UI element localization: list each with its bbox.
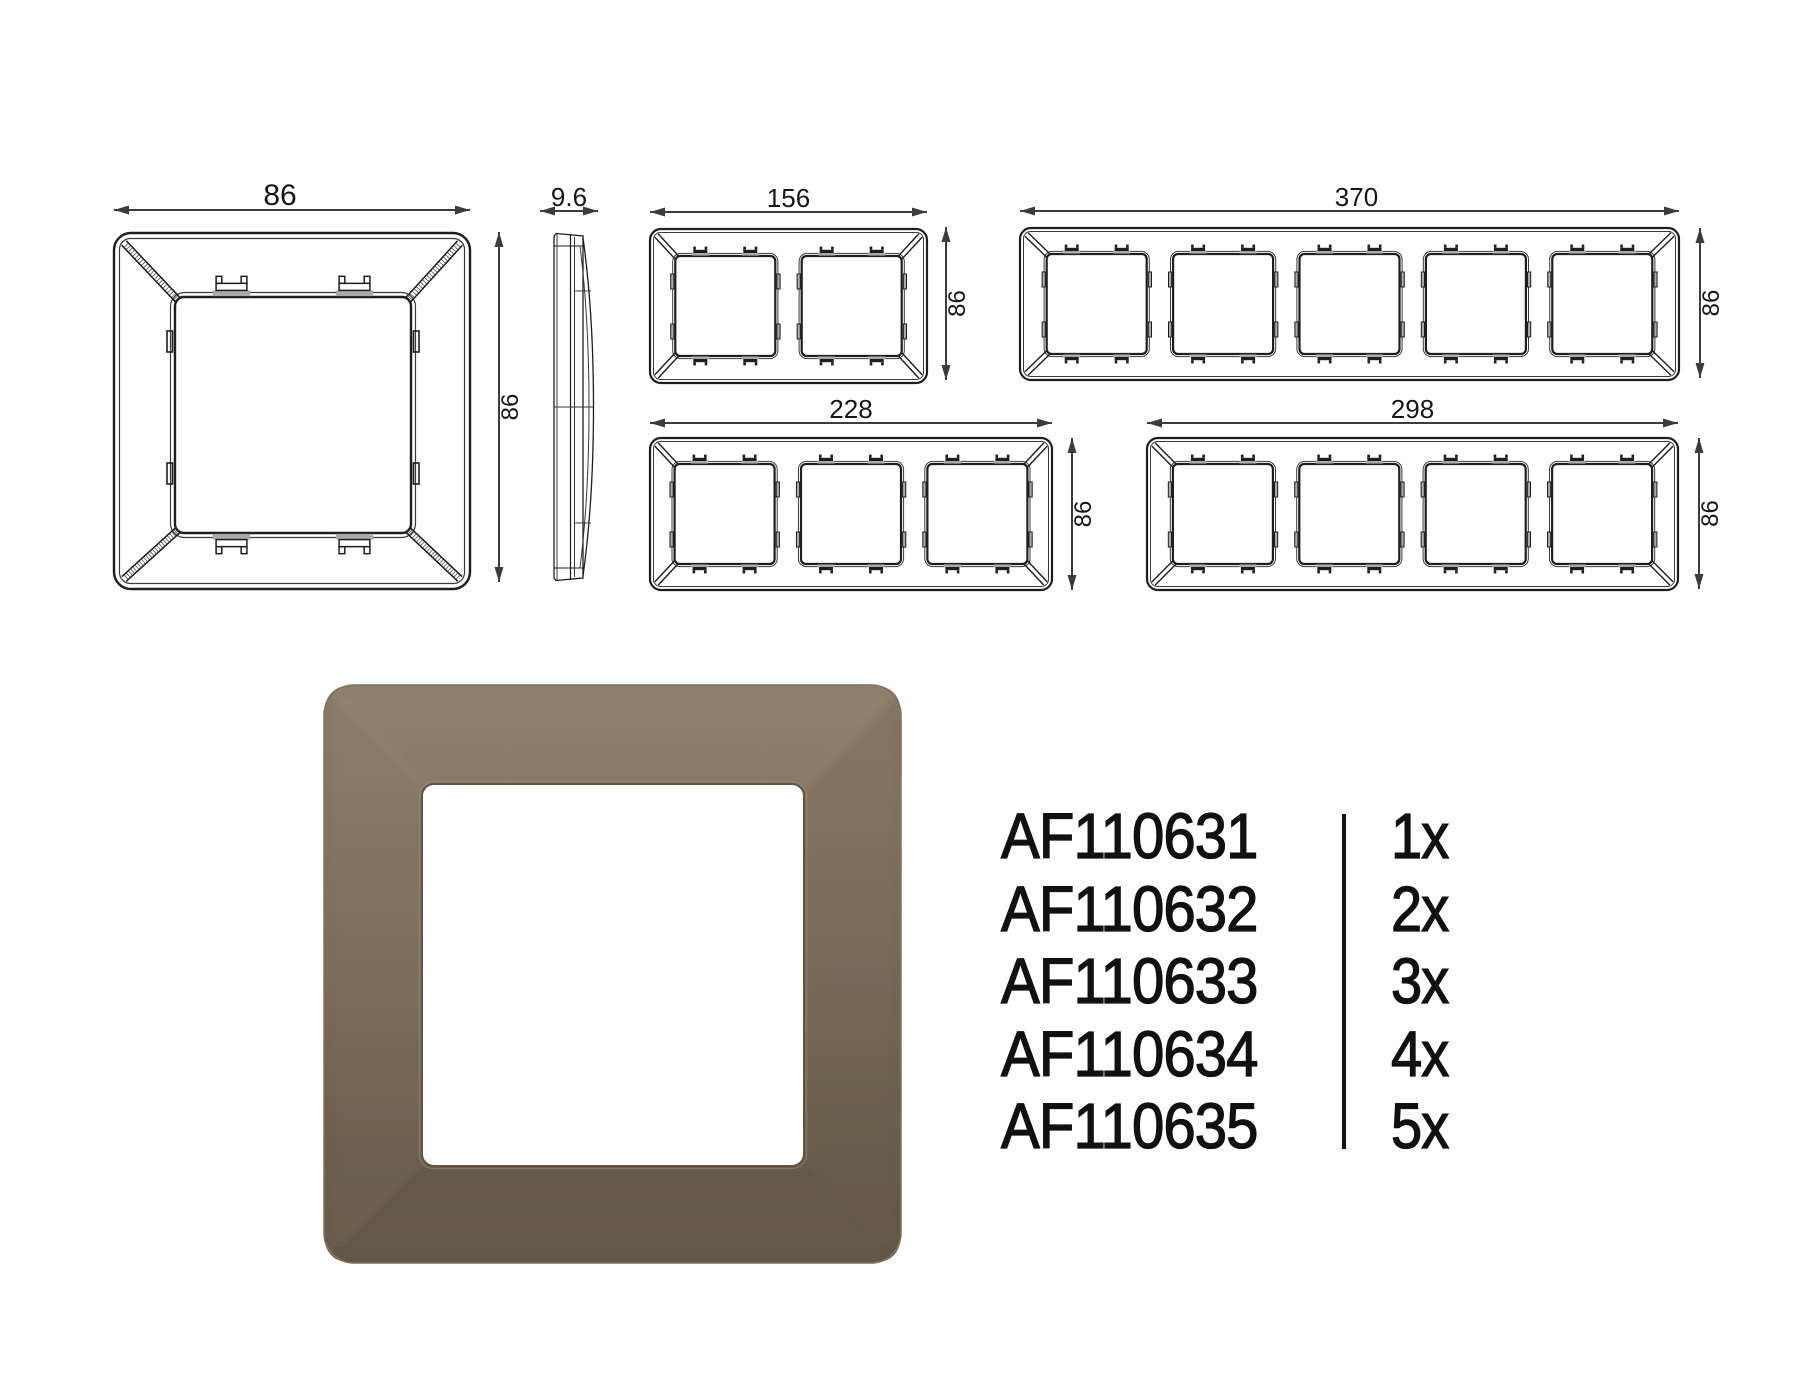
svg-text:86: 86 bbox=[263, 179, 296, 212]
svg-text:86: 86 bbox=[1697, 500, 1724, 527]
svg-text:86: 86 bbox=[1698, 290, 1725, 317]
svg-text:86: 86 bbox=[1070, 501, 1097, 528]
svg-text:9.6: 9.6 bbox=[551, 182, 587, 212]
svg-text:298: 298 bbox=[1391, 394, 1434, 424]
svg-text:86: 86 bbox=[497, 394, 524, 421]
svg-text:86: 86 bbox=[944, 290, 971, 317]
svg-text:228: 228 bbox=[829, 394, 872, 424]
svg-text:156: 156 bbox=[767, 183, 810, 213]
svg-text:370: 370 bbox=[1335, 182, 1378, 212]
